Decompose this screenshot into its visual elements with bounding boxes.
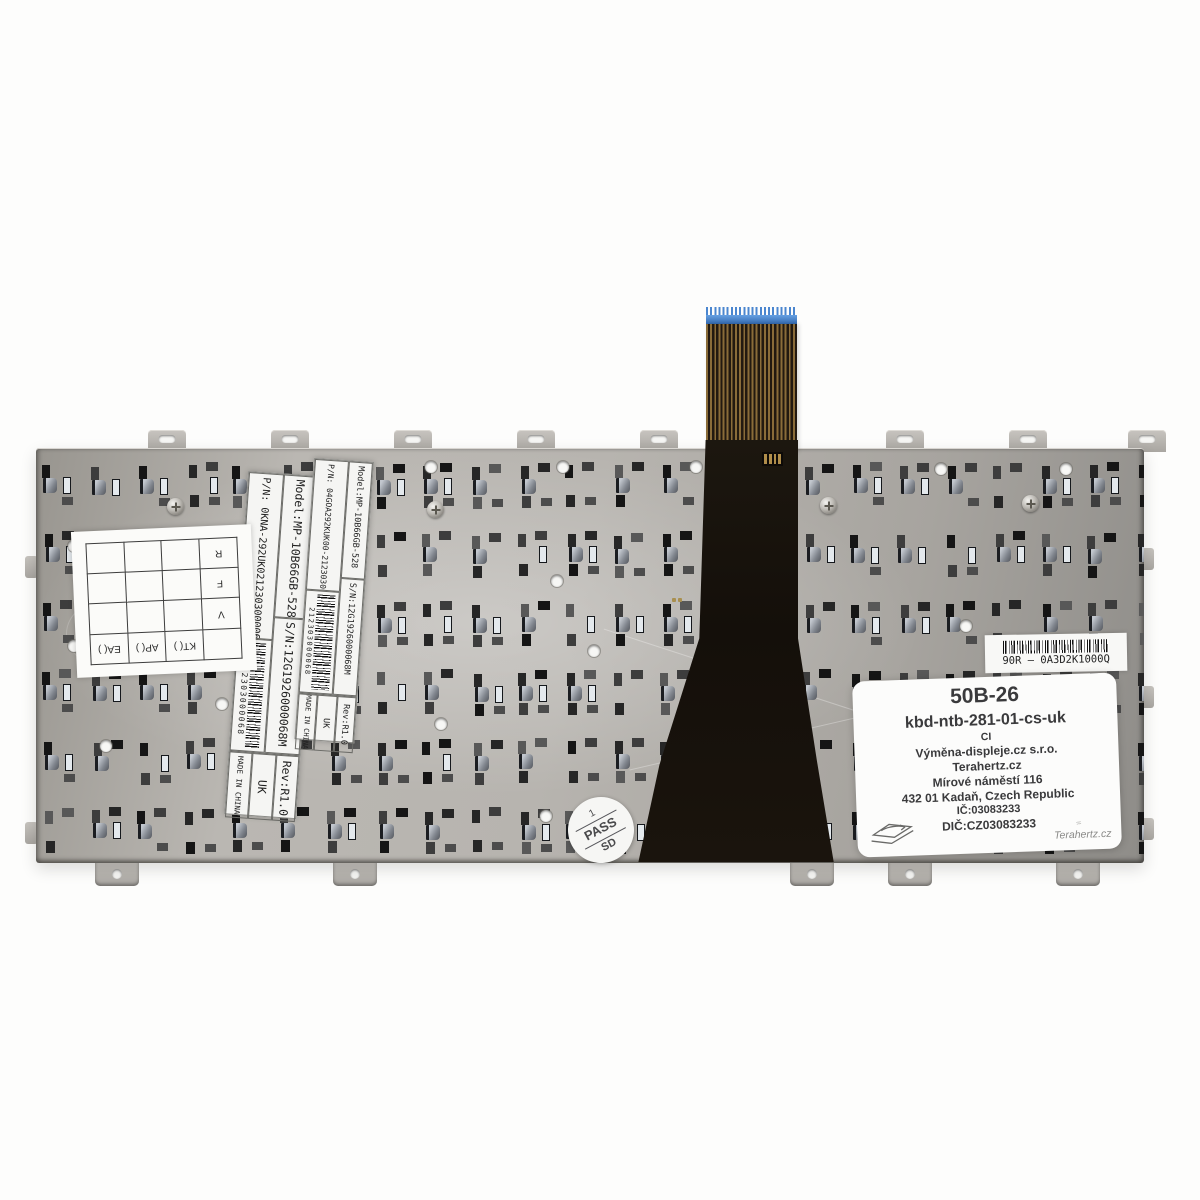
key-latch-cluster xyxy=(1138,670,1145,716)
latch-cutout xyxy=(377,605,385,618)
backlight-hole xyxy=(551,575,563,587)
tab-hole xyxy=(897,435,914,443)
latch-cutout xyxy=(567,673,575,686)
latch-hook xyxy=(281,823,295,838)
key-latch-cluster xyxy=(185,809,225,855)
latch-cutout xyxy=(1139,703,1145,715)
latch-cutout xyxy=(472,536,480,549)
latch-cutout xyxy=(1139,603,1145,616)
laptop-shipping-icon xyxy=(867,813,920,849)
key-latch-cluster xyxy=(521,463,561,509)
latch-slot xyxy=(160,478,168,495)
latch-cutout xyxy=(853,465,861,478)
latch-slot xyxy=(918,547,926,564)
latch-cutout xyxy=(823,602,835,611)
latch-cutout xyxy=(585,497,596,505)
latch-hook xyxy=(569,547,583,562)
latch-cutout xyxy=(426,842,435,854)
latch-cutout xyxy=(535,738,547,747)
latch-hook xyxy=(377,480,391,495)
latch-hook xyxy=(519,686,533,701)
latch-cutout xyxy=(379,773,388,785)
key-latch-cluster xyxy=(1042,531,1082,577)
latch-hook xyxy=(997,547,1011,562)
latch-cutout xyxy=(1088,566,1097,578)
latch-cutout xyxy=(683,497,694,505)
latch-cutout xyxy=(1139,842,1145,854)
latch-cutout xyxy=(474,743,482,756)
latch-cutout xyxy=(443,636,454,644)
layout-code: UK xyxy=(248,753,276,820)
latch-hook xyxy=(423,547,437,562)
latch-cutout xyxy=(62,808,74,817)
latch-hook xyxy=(1091,478,1105,493)
latch-hook xyxy=(901,479,915,494)
latch-cutout xyxy=(538,705,549,713)
latch-cutout xyxy=(439,739,451,748)
latch-cutout xyxy=(588,773,599,781)
latch-cutout xyxy=(378,702,387,714)
latch-cutout xyxy=(519,771,528,783)
ribbon-cable-traces xyxy=(706,324,797,452)
latch-cutout xyxy=(1139,465,1145,478)
latch-cutout xyxy=(870,567,881,575)
latch-slot xyxy=(493,617,501,634)
latch-cutout xyxy=(203,738,215,747)
backlight-hole xyxy=(960,620,972,632)
latch-hook xyxy=(43,685,57,700)
latch-cutout xyxy=(569,564,578,576)
latch-cutout xyxy=(993,466,1001,479)
latch-cutout xyxy=(1110,497,1121,505)
latch-cutout xyxy=(1088,603,1096,616)
latch-cutout xyxy=(440,601,452,610)
latch-hook xyxy=(898,548,912,563)
latch-cutout xyxy=(994,496,1003,508)
latch-cutout xyxy=(157,843,168,851)
latch-cutout xyxy=(1107,462,1119,471)
latch-cutout xyxy=(439,531,451,540)
latch-cutout xyxy=(541,498,552,506)
latch-hook xyxy=(93,686,107,701)
key-latch-cluster xyxy=(377,602,417,648)
latch-slot xyxy=(921,478,929,495)
latch-cutout xyxy=(141,773,150,785)
latch-slot xyxy=(112,479,120,496)
latch-cutout xyxy=(805,467,813,480)
qc-col-header: EA( ) xyxy=(90,633,129,665)
latch-hook xyxy=(473,618,487,633)
latch-cutout xyxy=(206,462,218,471)
latch-cutout xyxy=(538,601,550,610)
latch-cutout xyxy=(398,775,409,783)
latch-cutout xyxy=(139,466,147,479)
latch-hook xyxy=(519,754,533,769)
latch-cutout xyxy=(137,811,145,824)
latch-slot xyxy=(160,684,168,701)
latch-cutout xyxy=(1062,498,1073,506)
latch-cutout xyxy=(376,467,384,480)
latch-cutout xyxy=(535,670,547,679)
latch-cutout xyxy=(614,536,622,549)
latch-cutout xyxy=(425,702,434,714)
latch-cutout xyxy=(489,807,501,816)
latch-hook xyxy=(522,825,536,840)
latch-cutout xyxy=(1042,534,1050,547)
key-latch-cluster xyxy=(376,464,416,510)
latch-hook xyxy=(902,618,916,633)
latch-cutout xyxy=(1140,495,1145,507)
latch-hook xyxy=(95,756,109,771)
latch-cutout xyxy=(189,465,197,478)
latch-cutout xyxy=(1105,600,1117,609)
latch-hook xyxy=(949,479,963,494)
key-latch-cluster xyxy=(327,808,367,854)
latch-hook xyxy=(1139,756,1145,771)
key-latch-cluster xyxy=(422,739,462,785)
latch-cutout xyxy=(568,534,576,547)
latch-cutout xyxy=(1043,564,1052,576)
latch-slot xyxy=(113,822,121,839)
latch-hook xyxy=(380,824,394,839)
key-latch-cluster xyxy=(1090,462,1130,508)
latch-cutout xyxy=(1138,673,1145,686)
backlight-hole xyxy=(588,645,600,657)
latch-cutout xyxy=(1139,564,1145,576)
latch-cutout xyxy=(494,706,505,714)
latch-cutout xyxy=(43,603,51,616)
latch-cutout xyxy=(378,635,387,647)
key-latch-cluster xyxy=(91,464,131,510)
mount-tab-bottom xyxy=(95,861,139,886)
key-latch-cluster xyxy=(45,808,85,854)
key-latch-cluster xyxy=(92,807,132,853)
latch-slot xyxy=(207,753,215,770)
latch-cutout xyxy=(948,466,956,479)
latch-cutout xyxy=(1087,536,1095,549)
latch-cutout xyxy=(489,533,501,542)
mount-tab-bottom xyxy=(333,861,377,886)
key-latch-cluster xyxy=(137,808,177,854)
latch-cutout xyxy=(473,635,482,647)
latch-cutout xyxy=(202,809,214,818)
latch-cutout xyxy=(205,844,216,852)
latch-cutout xyxy=(963,601,975,610)
key-latch-cluster xyxy=(518,738,558,784)
latch-cutout xyxy=(394,602,406,611)
latch-cutout xyxy=(1138,534,1145,547)
latch-slot xyxy=(874,477,882,494)
backlight-hole xyxy=(425,461,437,473)
latch-slot xyxy=(1017,546,1025,563)
latch-cutout xyxy=(663,465,671,478)
backlight-hole xyxy=(435,718,447,730)
latch-hook xyxy=(852,618,866,633)
latch-cutout xyxy=(966,636,977,644)
latch-cutout xyxy=(522,634,531,646)
latch-slot xyxy=(827,546,835,563)
latch-cutout xyxy=(1091,495,1100,507)
latch-hook xyxy=(475,687,489,702)
latch-cutout xyxy=(423,604,431,617)
key-latch-cluster xyxy=(377,532,417,578)
latch-cutout xyxy=(615,465,623,478)
latch-cutout xyxy=(873,497,884,505)
backlight-hole xyxy=(935,463,947,475)
key-latch-cluster xyxy=(140,740,180,786)
latch-slot xyxy=(495,686,503,703)
latch-cutout xyxy=(233,496,242,508)
latch-slot xyxy=(588,685,596,702)
latch-hook xyxy=(1043,479,1057,494)
latch-cutout xyxy=(615,741,623,754)
key-latch-cluster xyxy=(518,531,558,577)
latch-cutout xyxy=(62,704,73,712)
latch-hook xyxy=(43,478,57,493)
tab-hole xyxy=(1139,435,1156,443)
latch-cutout xyxy=(677,670,689,679)
screw xyxy=(820,497,837,514)
latch-cutout xyxy=(631,533,643,542)
key-latch-cluster xyxy=(566,601,606,647)
key-latch-cluster xyxy=(423,601,463,647)
latch-slot xyxy=(65,754,73,771)
latch-cutout xyxy=(475,704,484,716)
qc-col-header: AP( ) xyxy=(128,631,167,663)
key-latch-cluster xyxy=(1138,809,1145,855)
latch-cutout xyxy=(822,464,834,473)
latch-cutout xyxy=(344,808,356,817)
latch-slot xyxy=(539,685,547,702)
latch-hook xyxy=(426,825,440,840)
tab-hole xyxy=(651,435,668,443)
latch-cutout xyxy=(252,842,263,850)
backlight-hole xyxy=(100,740,112,752)
latch-cutout xyxy=(396,808,408,817)
latch-cutout xyxy=(946,604,954,617)
latch-cutout xyxy=(440,463,452,472)
latch-cutout xyxy=(664,564,673,576)
latch-cutout xyxy=(472,467,480,480)
key-latch-cluster xyxy=(472,464,512,510)
latch-slot xyxy=(398,617,406,634)
key-latch-cluster xyxy=(614,533,654,579)
key-latch-cluster xyxy=(378,740,418,786)
key-latch-cluster xyxy=(663,601,703,647)
key-latch-cluster xyxy=(424,669,464,715)
latch-cutout xyxy=(472,605,480,618)
latch-slot xyxy=(397,479,405,496)
latch-hook xyxy=(424,479,438,494)
latch-cutout xyxy=(1043,604,1051,617)
latch-cutout xyxy=(159,704,170,712)
latch-slot xyxy=(1111,477,1119,494)
latch-cutout xyxy=(378,743,386,756)
latch-cutout xyxy=(377,672,385,685)
latch-cutout xyxy=(614,673,622,686)
product-photo-keyboard-backplate: 05A300900LP4101 Model:MP-10B66GB-528 S/N… xyxy=(0,0,1200,1200)
latch-cutout xyxy=(680,601,692,610)
key-latch-cluster xyxy=(425,809,465,855)
latch-cutout xyxy=(541,844,552,852)
latch-hook xyxy=(807,618,821,633)
latch-cutout xyxy=(397,637,408,645)
latch-cutout xyxy=(661,703,670,715)
latch-cutout xyxy=(379,811,387,824)
latch-cutout xyxy=(901,605,909,618)
tab-hole xyxy=(807,869,817,879)
latch-cutout xyxy=(635,773,646,781)
key-latch-cluster xyxy=(1138,740,1145,786)
latch-cutout xyxy=(60,600,72,609)
latch-hook xyxy=(851,548,865,563)
key-latch-cluster xyxy=(565,462,605,508)
latch-cutout xyxy=(442,774,453,782)
asus-barcode-label: 90R – 0A3D2K1000Q xyxy=(985,633,1128,673)
key-latch-cluster xyxy=(1138,531,1145,577)
latch-slot xyxy=(398,684,406,701)
latch-hook xyxy=(806,480,820,495)
latch-hook xyxy=(947,617,961,632)
latch-cutout xyxy=(615,566,624,578)
key-latch-cluster xyxy=(615,601,655,647)
tab-hole xyxy=(1073,869,1083,879)
latch-cutout xyxy=(582,462,594,471)
latch-cutout xyxy=(968,498,979,506)
latch-cutout xyxy=(492,842,503,850)
mount-tab-bottom xyxy=(790,861,834,886)
latch-hook xyxy=(328,824,342,839)
latch-hook xyxy=(522,479,536,494)
key-latch-cluster xyxy=(947,532,987,578)
key-latch-cluster xyxy=(850,532,890,578)
latch-cutout xyxy=(395,740,407,749)
latch-cutout xyxy=(441,669,453,678)
latch-hook xyxy=(1089,616,1103,631)
key-latch-cluster xyxy=(472,807,512,853)
latch-cutout xyxy=(631,670,643,679)
qc-row-header: R xyxy=(199,537,238,569)
latch-cutout xyxy=(351,775,362,783)
latch-cutout xyxy=(568,741,576,754)
latch-slot xyxy=(444,478,452,495)
latch-slot xyxy=(210,477,218,494)
key-latch-cluster xyxy=(189,462,229,508)
latch-slot xyxy=(872,617,880,634)
backlight-hole xyxy=(690,461,702,473)
latch-cutout xyxy=(473,566,482,578)
latch-hook xyxy=(138,824,152,839)
backlight-hole xyxy=(1060,463,1072,475)
latch-cutout xyxy=(870,462,882,471)
latch-cutout xyxy=(491,740,503,749)
latch-cutout xyxy=(45,534,53,547)
key-latch-cluster xyxy=(897,532,937,578)
latch-slot xyxy=(113,685,121,702)
latch-cutout xyxy=(522,842,531,854)
latch-cutout xyxy=(871,637,882,645)
latch-cutout xyxy=(585,738,597,747)
key-latch-cluster xyxy=(615,738,655,784)
latch-cutout xyxy=(615,604,623,617)
latch-cutout xyxy=(185,812,193,825)
latch-cutout xyxy=(187,672,195,685)
key-latch-cluster xyxy=(1087,533,1127,579)
latch-slot xyxy=(63,477,71,494)
latch-cutout xyxy=(616,495,625,507)
key-latch-cluster xyxy=(615,462,655,508)
latch-slot xyxy=(589,546,597,563)
latch-hook xyxy=(616,754,630,769)
latch-cutout xyxy=(442,809,454,818)
key-latch-cluster xyxy=(379,808,419,854)
latch-hook xyxy=(233,823,247,838)
latch-cutout xyxy=(327,811,335,824)
key-latch-cluster xyxy=(42,669,82,715)
latch-cutout xyxy=(186,842,195,854)
latch-cutout xyxy=(900,466,908,479)
latch-cutout xyxy=(948,565,957,577)
latch-cutout xyxy=(947,535,955,548)
latch-slot xyxy=(443,754,451,771)
latch-hook xyxy=(1044,617,1058,632)
latch-slot xyxy=(161,755,169,772)
latch-hook xyxy=(1088,549,1102,564)
made-in: MADE IN CHINA xyxy=(225,751,253,818)
latch-slot xyxy=(922,617,930,634)
latch-cutout xyxy=(566,604,574,617)
latch-cutout xyxy=(44,742,52,755)
latch-slot xyxy=(587,616,595,633)
latch-hook xyxy=(46,547,60,562)
latch-cutout xyxy=(584,670,596,679)
latch-cutout xyxy=(297,807,309,816)
tab-hole xyxy=(112,869,122,879)
latch-hook xyxy=(616,617,630,632)
key-latch-cluster xyxy=(472,602,512,648)
latch-cutout xyxy=(683,566,694,574)
latch-hook xyxy=(379,756,393,771)
latch-slot xyxy=(1063,546,1071,563)
key-latch-cluster xyxy=(996,531,1036,577)
latch-cutout xyxy=(567,634,576,646)
latch-cutout xyxy=(380,841,389,853)
key-latch-cluster xyxy=(614,670,654,716)
latch-cutout xyxy=(377,497,386,509)
latch-cutout xyxy=(474,674,482,687)
latch-cutout xyxy=(1010,463,1022,472)
latch-cutout xyxy=(160,775,171,783)
latch-cutout xyxy=(806,534,814,547)
latch-cutout xyxy=(569,771,578,783)
key-latch-cluster xyxy=(472,533,512,579)
latch-cutout xyxy=(996,534,1004,547)
made-in: MADE IN CHINA xyxy=(295,693,318,750)
latch-hook xyxy=(140,685,154,700)
latch-cutout xyxy=(62,497,73,505)
tab-hole xyxy=(1020,435,1037,443)
latch-cutout xyxy=(188,702,197,714)
latch-cutout xyxy=(186,741,194,754)
latch-slot xyxy=(348,823,356,840)
latch-hook xyxy=(332,756,346,771)
latch-cutout xyxy=(1013,531,1025,540)
latch-cutout xyxy=(377,535,385,548)
latch-cutout xyxy=(423,772,432,784)
latch-cutout xyxy=(521,466,529,479)
latch-hook xyxy=(188,685,202,700)
latch-cutout xyxy=(518,534,526,547)
